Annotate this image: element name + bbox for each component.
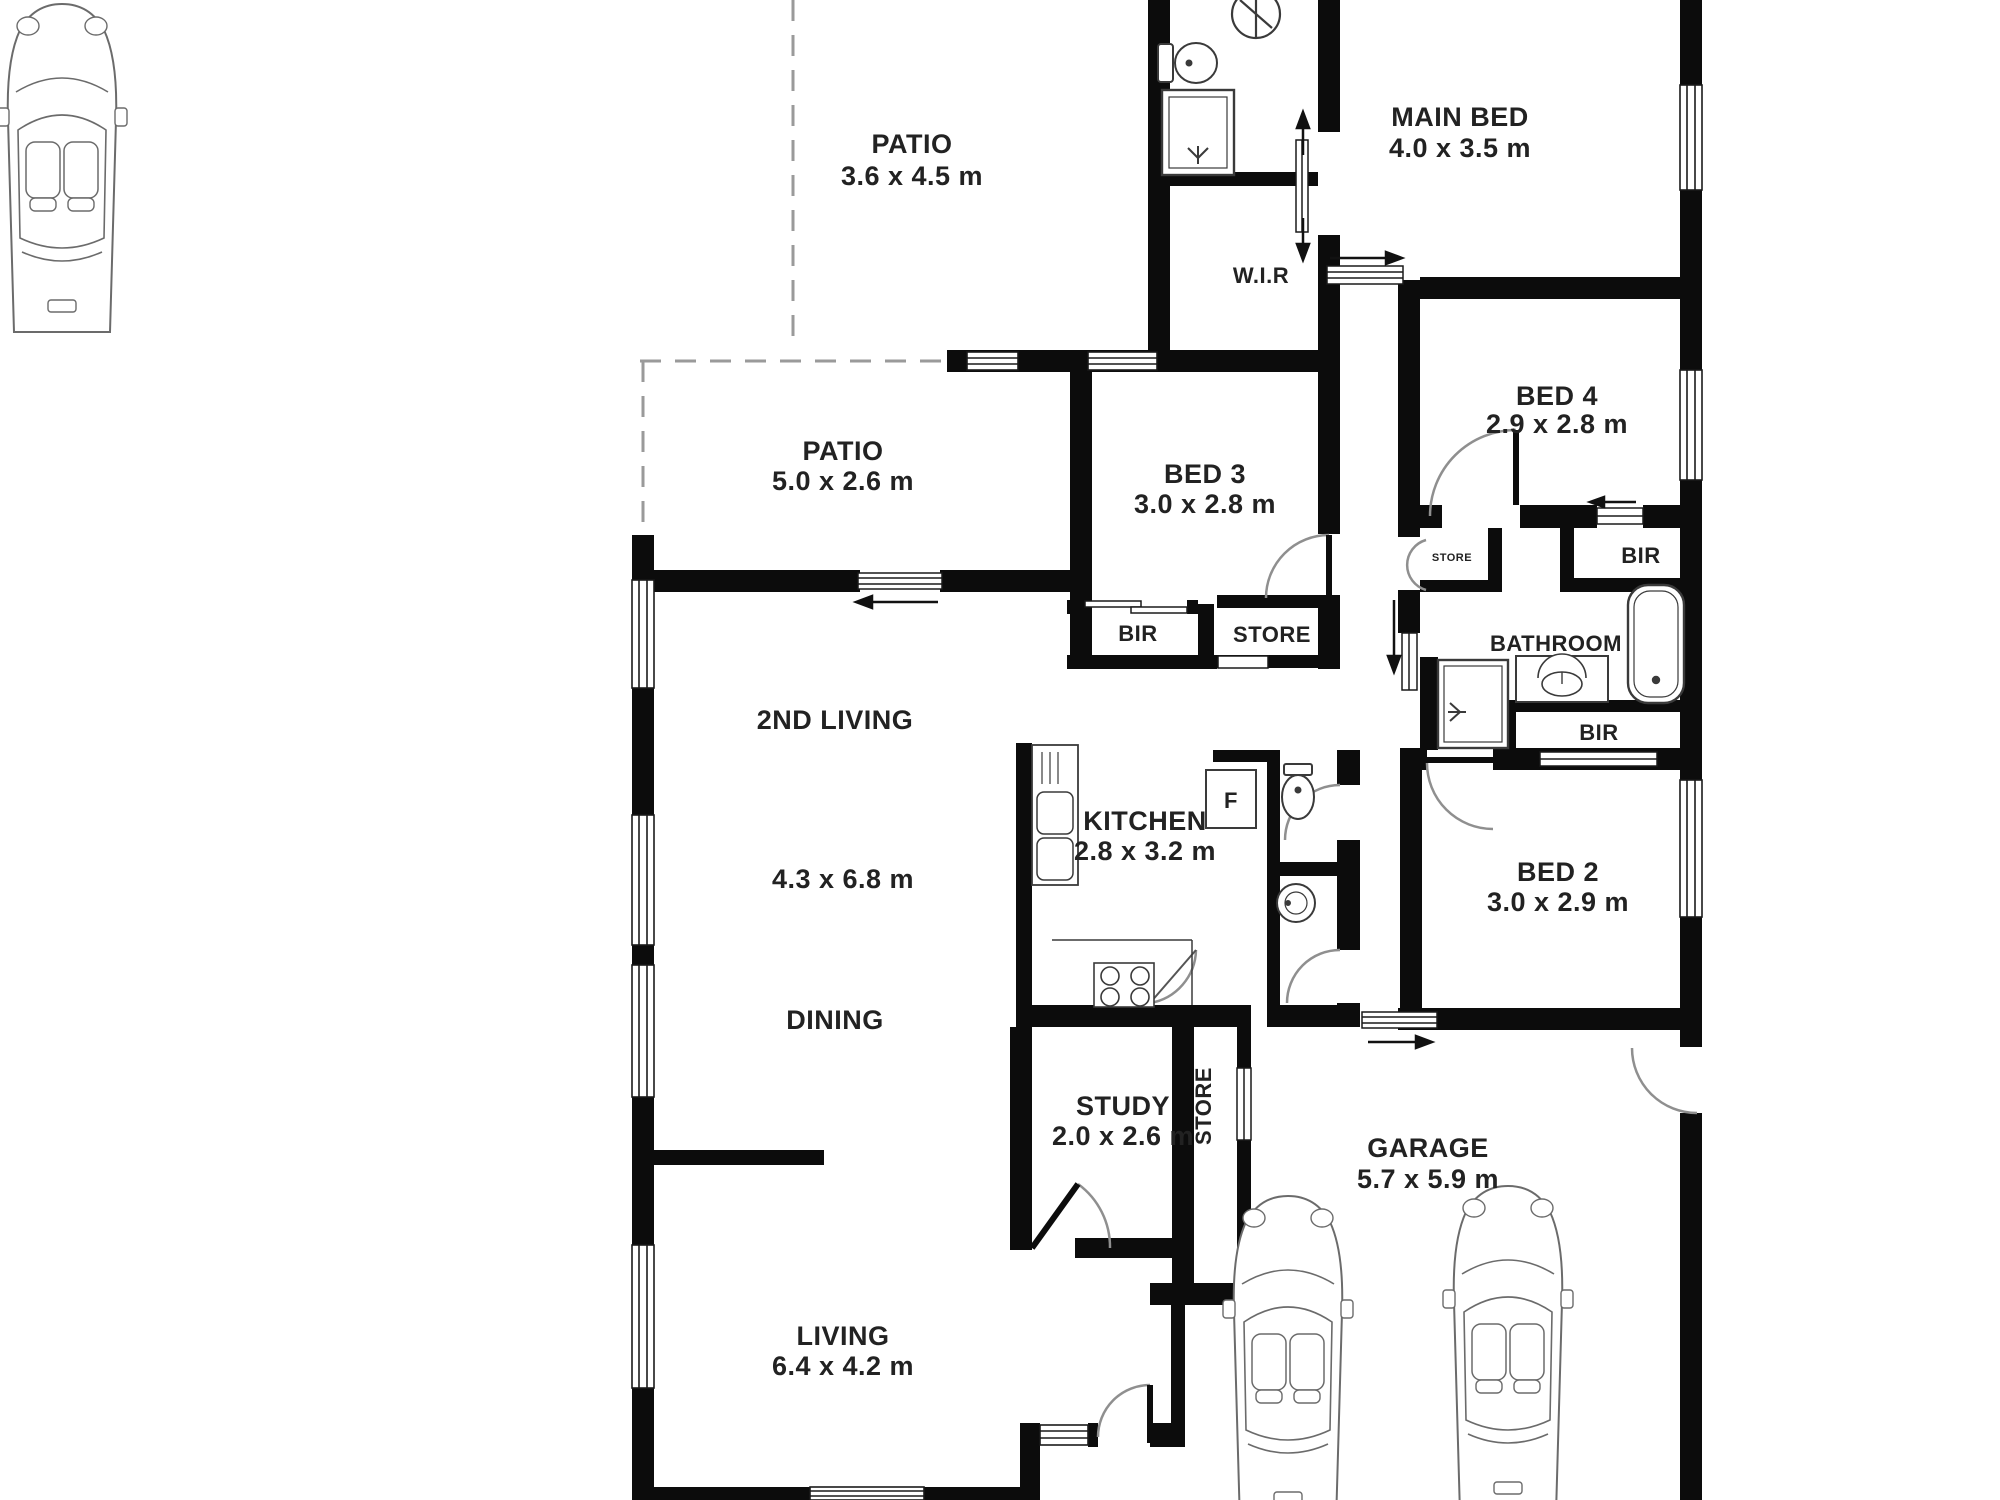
label-store-tall: STORE — [1191, 1067, 1216, 1145]
label-patio-top: PATIO — [872, 129, 953, 159]
shower-bathroom-icon — [1438, 660, 1508, 748]
window-bed4 — [1680, 370, 1702, 480]
arrow-patio-left — [856, 596, 938, 608]
label-second-living: 2ND LIVING — [757, 705, 914, 735]
label-second-living-dims: 4.3 x 6.8 m — [772, 864, 914, 894]
label-main-bed: MAIN BED — [1391, 102, 1529, 132]
arrow-garage-hall-right — [1368, 1036, 1432, 1048]
label-bir-bed4: BIR — [1621, 543, 1660, 568]
toilet-icon — [1158, 43, 1217, 83]
floor-plan: PATIO 3.6 x 4.5 m MAIN BED 4.0 x 3.5 m W… — [0, 0, 2000, 1500]
sliding-door-bir-bed2 — [1540, 752, 1657, 766]
label-bed4: BED 4 — [1516, 381, 1598, 411]
label-patio-top-dims: 3.6 x 4.5 m — [841, 161, 983, 191]
door-arc-garage-side — [1632, 1048, 1697, 1113]
window-bed2 — [1680, 780, 1702, 917]
label-study-dims: 2.0 x 2.6 m — [1052, 1121, 1194, 1151]
label-kitchen-dims: 2.8 x 3.2 m — [1074, 836, 1216, 866]
window-left-1 — [632, 580, 654, 688]
label-dining: DINING — [786, 1005, 884, 1035]
label-store-bed3: STORE — [1233, 622, 1311, 647]
sliding-door-bathroom — [1402, 633, 1417, 690]
door-leaf-study — [1032, 1184, 1078, 1248]
ceiling-fixture-icon — [1232, 0, 1280, 38]
window-left-4 — [632, 1245, 654, 1388]
sliding-door-main-bed — [1327, 266, 1403, 284]
label-garage-dims: 5.7 x 5.9 m — [1357, 1164, 1499, 1194]
label-fridge: F — [1224, 788, 1238, 813]
door-arc-entry — [1098, 1385, 1150, 1437]
label-garage: GARAGE — [1367, 1133, 1489, 1163]
label-patio-side: PATIO — [803, 436, 884, 466]
door-arc-powder — [1287, 950, 1340, 1003]
window-patio-wall — [967, 352, 1018, 370]
sliding-door-bir-bed4 — [1597, 508, 1643, 524]
label-bed3-dims: 3.0 x 2.8 m — [1134, 489, 1276, 519]
door-arc-bed4 — [1430, 430, 1516, 516]
floor-plan-drawing: PATIO 3.6 x 4.5 m MAIN BED 4.0 x 3.5 m W… — [0, 0, 2000, 1500]
vanity-icon — [1516, 654, 1608, 702]
label-bathroom: BATHROOM — [1490, 631, 1622, 656]
label-living-dims: 6.4 x 4.2 m — [772, 1351, 914, 1381]
basin-icon — [1277, 884, 1315, 922]
car-icon — [1443, 1186, 1573, 1500]
kitchen-sink-icon — [1032, 745, 1078, 885]
door-arc-bed3 — [1266, 535, 1329, 598]
arrow-bir4-left — [1590, 497, 1636, 507]
window-main-bed — [1680, 85, 1702, 190]
sliding-door-bir-bed3 — [1085, 601, 1187, 613]
label-patio-side-dims: 5.0 x 2.6 m — [772, 466, 914, 496]
car-icon — [1223, 1196, 1353, 1500]
label-bir-bed2: BIR — [1579, 720, 1618, 745]
label-bed3: BED 3 — [1164, 459, 1246, 489]
window-left-2 — [632, 815, 654, 945]
bathtub-icon — [1628, 585, 1684, 703]
window-entry — [1040, 1425, 1088, 1445]
sliding-door-patio — [858, 573, 942, 589]
shower-icon — [1162, 90, 1234, 175]
label-bir-bed3: BIR — [1118, 621, 1157, 646]
wc-toilet-icon — [1282, 764, 1314, 819]
door-store-bed3 — [1218, 656, 1268, 668]
door-store-garage — [1237, 1068, 1251, 1140]
window-living-bottom — [810, 1487, 924, 1500]
label-bed2: BED 2 — [1517, 857, 1599, 887]
window-bed3 — [1088, 352, 1157, 370]
label-bed4-dims: 2.9 x 2.8 m — [1486, 409, 1628, 439]
label-study: STUDY — [1076, 1091, 1170, 1121]
stove-icon — [1094, 963, 1154, 1007]
label-kitchen: KITCHEN — [1083, 806, 1207, 836]
label-store-hall: STORE — [1432, 552, 1472, 564]
label-main-bed-dims: 4.0 x 3.5 m — [1389, 133, 1531, 163]
door-arc-bed2 — [1427, 763, 1493, 829]
window-left-3 — [632, 965, 654, 1097]
sliding-door-garage-hall — [1362, 1012, 1437, 1028]
label-wir: W.I.R — [1233, 263, 1289, 288]
label-living: LIVING — [796, 1321, 889, 1351]
label-bed2-dims: 3.0 x 2.9 m — [1487, 887, 1629, 917]
arrow-main-bed-right — [1330, 252, 1402, 264]
patio-boundary-dashed — [640, 0, 947, 535]
